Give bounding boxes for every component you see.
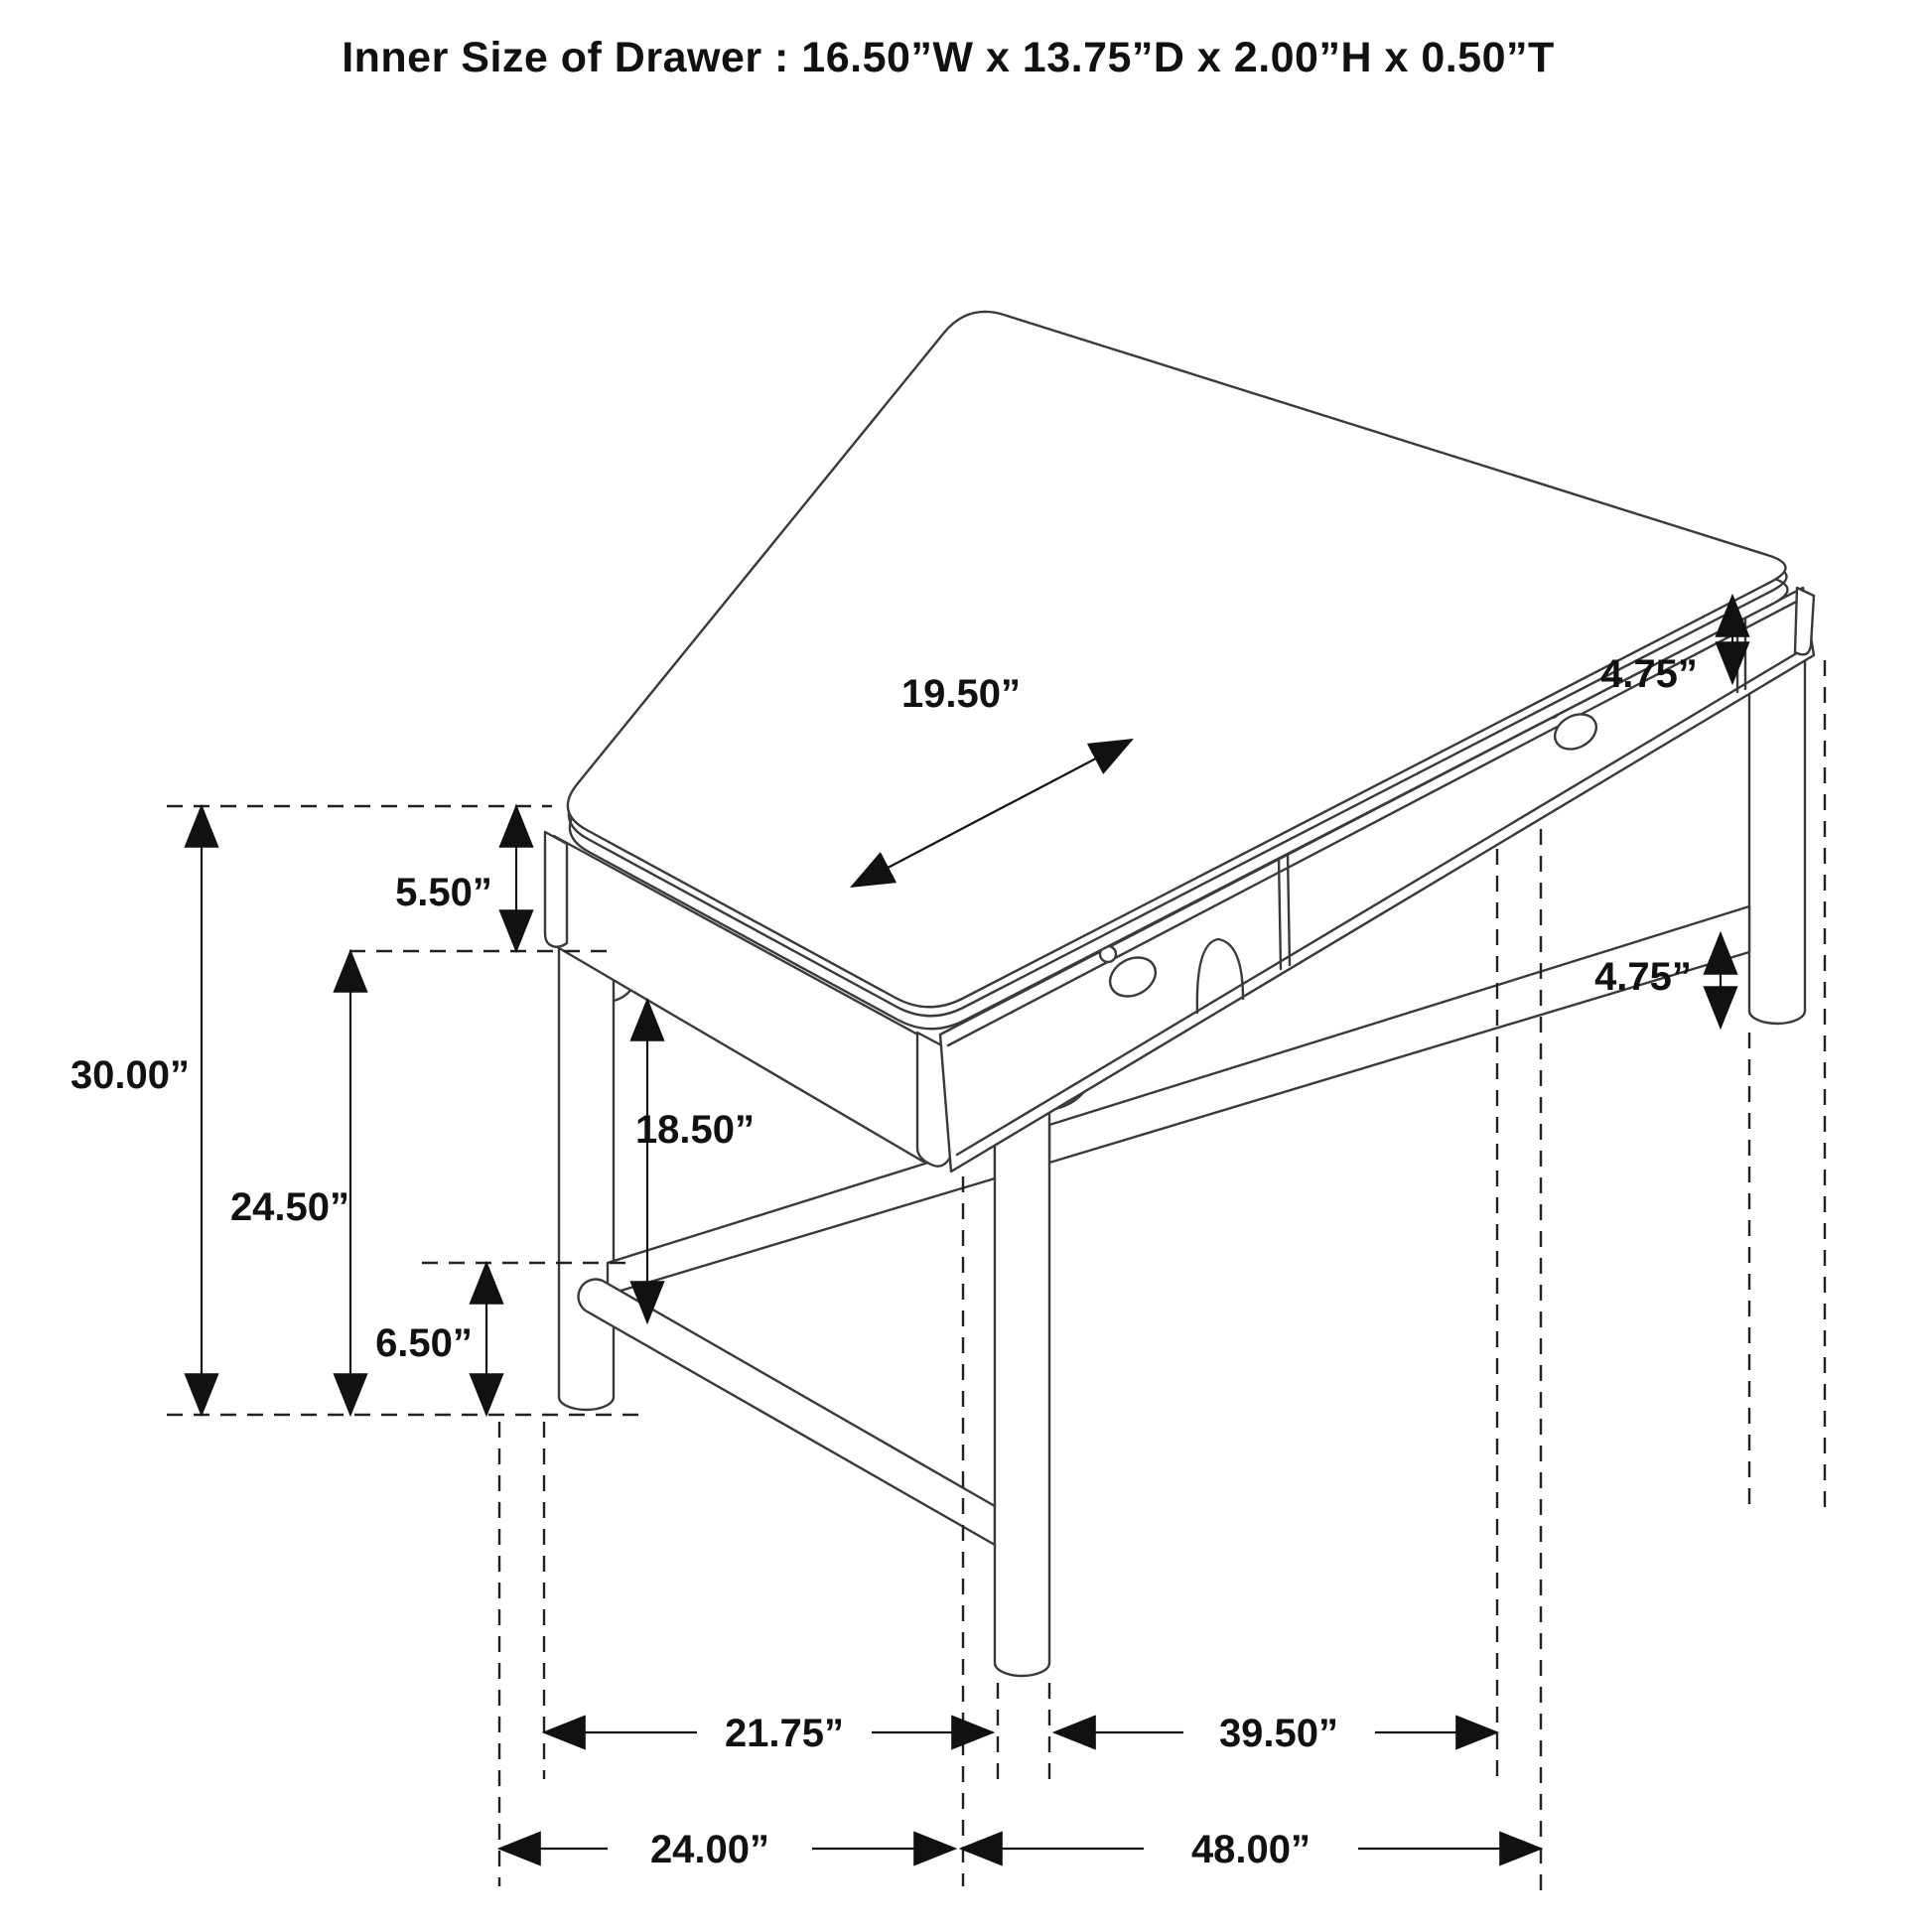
dim-under-apron-label: 24.50” bbox=[230, 1185, 349, 1229]
dim-overall-width-label: 48.00” bbox=[1191, 1828, 1311, 1871]
stretcher-left bbox=[579, 1280, 995, 1545]
dim-stretcher-height-label: 6.50” bbox=[375, 1321, 473, 1365]
leg-back-left bbox=[559, 945, 614, 1410]
leg-back-left-body bbox=[559, 945, 614, 1410]
leg-back-right-body bbox=[1749, 635, 1805, 1024]
dim-top-right-height-label: 4.75” bbox=[1600, 652, 1698, 696]
desk-dimension-drawing: Inner Size of Drawer : 16.50”W x 13.75”D… bbox=[0, 0, 1932, 1932]
dim-overall-depth-label: 24.00” bbox=[650, 1828, 769, 1871]
dim-drawer-width-label: 19.50” bbox=[901, 672, 1021, 716]
dim-knee-clearance-label: 18.50” bbox=[635, 1108, 755, 1152]
stretcher-left-body bbox=[579, 1280, 995, 1545]
dim-overall-height-label: 30.00” bbox=[70, 1053, 190, 1097]
dim-left-leg-span-label: 21.75” bbox=[725, 1712, 844, 1755]
leg-front-body bbox=[995, 1092, 1049, 1676]
apron-corner-post-right bbox=[1795, 588, 1814, 654]
dim-apron-height-label: 5.50” bbox=[395, 871, 492, 914]
dim-front-leg-span-label: 39.50” bbox=[1219, 1712, 1338, 1755]
dim-leg-bottom-height-label: 4.75” bbox=[1594, 955, 1692, 999]
figure-title: Inner Size of Drawer : 16.50”W x 13.75”D… bbox=[342, 34, 1555, 81]
apron-corner-post-left bbox=[545, 832, 567, 947]
leg-front bbox=[995, 1092, 1049, 1676]
leg-back-right bbox=[1749, 635, 1805, 1024]
dimension-diagram: Inner Size of Drawer : 16.50”W x 13.75”D… bbox=[0, 0, 1932, 1932]
